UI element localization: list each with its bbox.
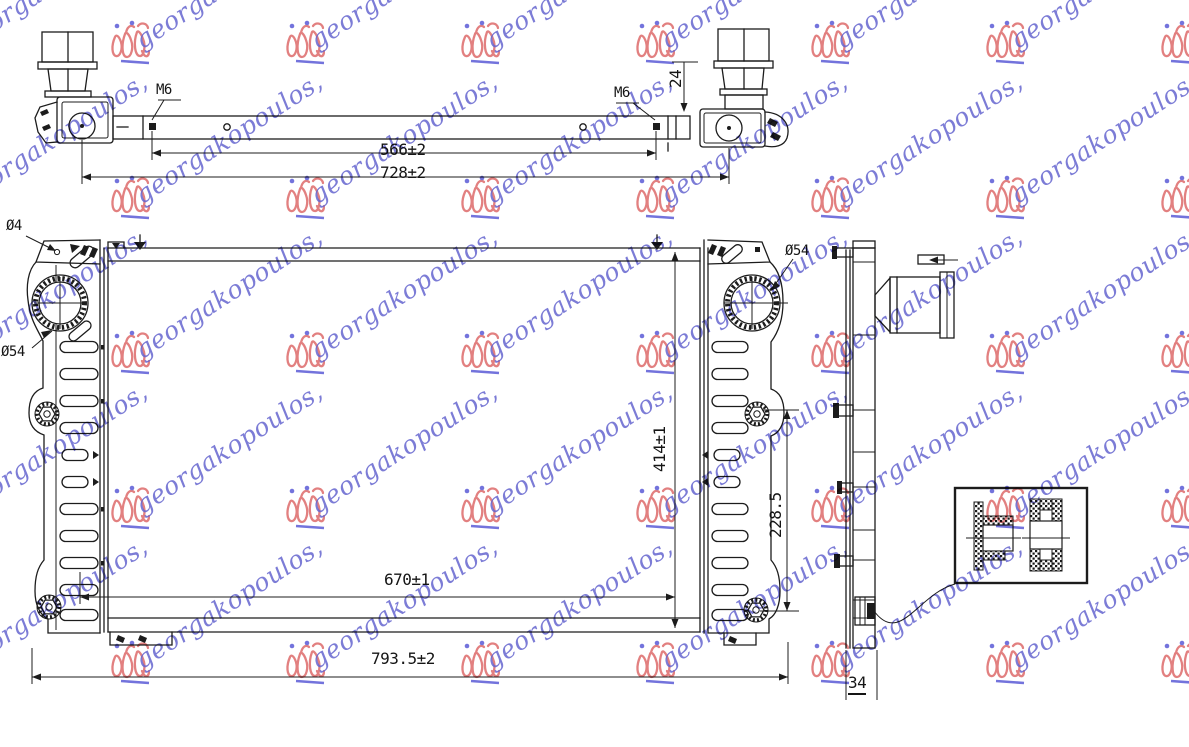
label-dim-24: 24 xyxy=(666,70,685,88)
label-m6-left: M6 xyxy=(156,82,172,98)
dimension-labels: M6 M6 24 566±2 728±2 Ø4 Ø54 Ø54 414±1 22… xyxy=(0,0,1189,747)
label-dim-728: 728±2 xyxy=(380,163,426,182)
label-dim-670: 670±1 xyxy=(384,570,430,589)
technical-drawing-page: M6 M6 24 566±2 728±2 Ø4 Ø54 Ø54 414±1 22… xyxy=(0,0,1189,747)
label-dia-4: Ø4 xyxy=(6,218,22,234)
label-dim-228-5: 228.5 xyxy=(766,492,785,538)
label-dim-793-5: 793.5±2 xyxy=(371,649,435,668)
label-dim-414: 414±1 xyxy=(650,426,669,472)
label-dim-566: 566±2 xyxy=(380,140,426,159)
label-dia-54-right: Ø54 xyxy=(785,243,809,259)
label-dia-54-left: Ø54 xyxy=(1,344,25,360)
label-m6-right: M6 xyxy=(614,85,630,101)
label-dim-34: 34 xyxy=(848,673,866,695)
